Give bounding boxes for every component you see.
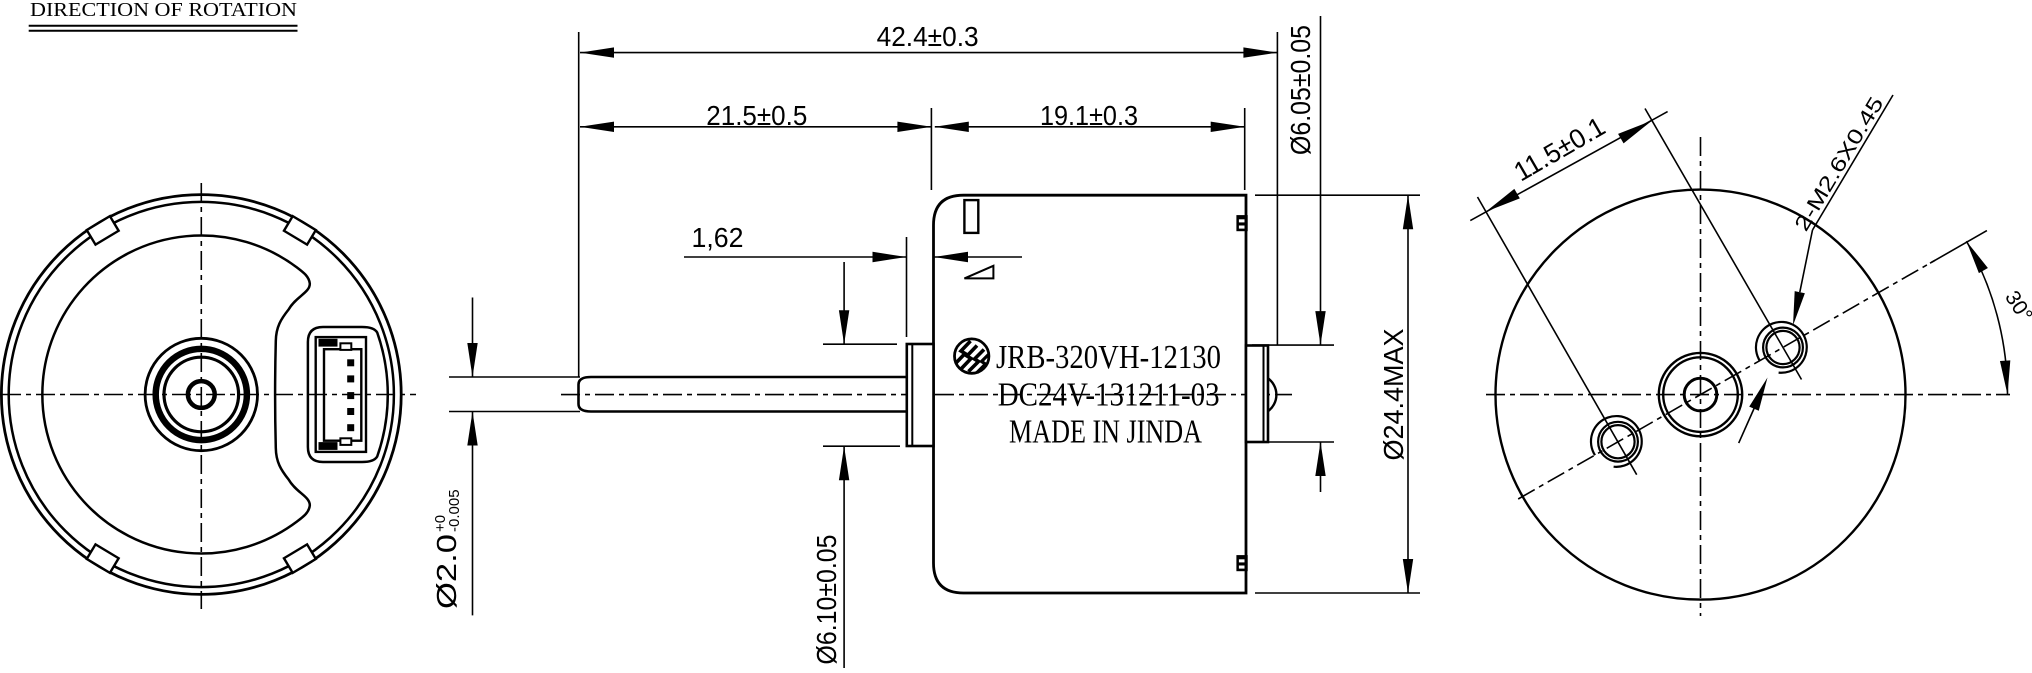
svg-text:MADE IN JINDA: MADE IN JINDA (1009, 414, 1202, 451)
svg-text:Ø6.10±0.05: Ø6.10±0.05 (811, 535, 842, 665)
svg-text:Ø6.05±0.05: Ø6.05±0.05 (1285, 25, 1316, 155)
svg-text:1,62: 1,62 (692, 222, 744, 253)
svg-text:JRB-320VH-12130: JRB-320VH-12130 (996, 339, 1221, 376)
svg-text:2-M2.6X0.45: 2-M2.6X0.45 (1790, 93, 1888, 235)
svg-text:Ø24.4MAX: Ø24.4MAX (1378, 328, 1409, 460)
svg-text:DC24V-131211-03: DC24V-131211-03 (998, 377, 1220, 414)
svg-text:DIRECTION OF ROTATION: DIRECTION OF ROTATION (30, 0, 297, 21)
svg-text:Ø2.0: Ø2.0 (431, 534, 462, 609)
svg-text:30°: 30° (2000, 287, 2032, 326)
svg-text:21.5±0.5: 21.5±0.5 (706, 100, 807, 131)
svg-text:-0.005: -0.005 (446, 489, 463, 532)
svg-text:42.4±0.3: 42.4±0.3 (877, 21, 979, 52)
svg-text:19.1±0.3: 19.1±0.3 (1040, 100, 1138, 131)
svg-text:11.5±0.1: 11.5±0.1 (1509, 111, 1611, 187)
